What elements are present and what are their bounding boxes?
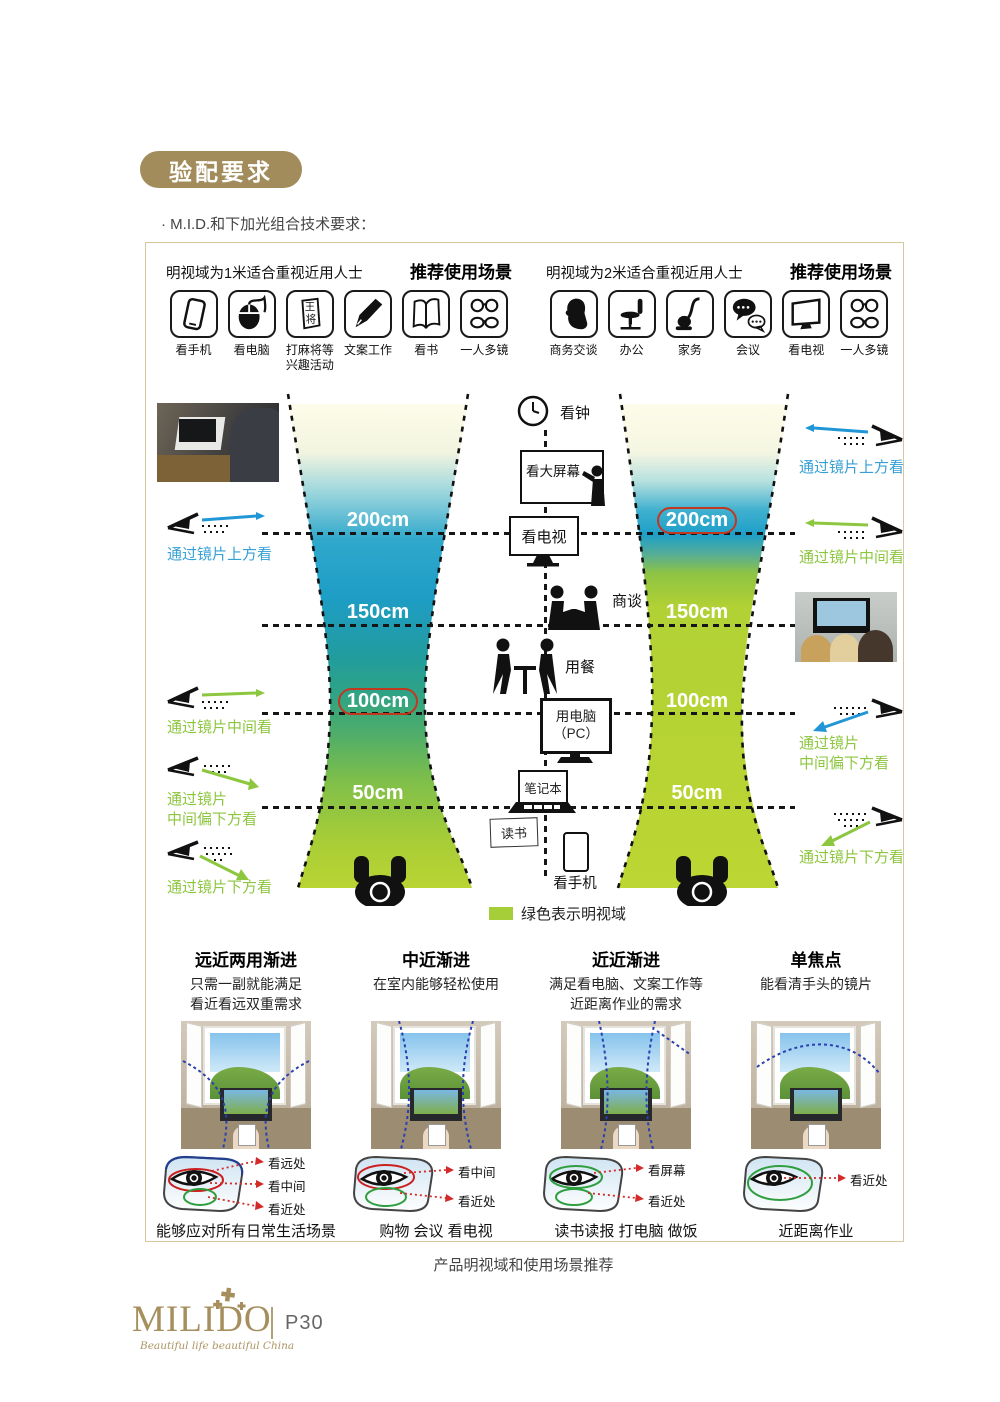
logo-sparkle-icon bbox=[208, 1286, 252, 1312]
section-subtitle: · M.I.D.和下加光组合技术要求： bbox=[161, 213, 375, 234]
photo-family-tv bbox=[795, 592, 897, 662]
dining-silhouette bbox=[490, 636, 560, 694]
lens-usage-caption: 能够应对所有日常生活场景 bbox=[152, 1220, 340, 1241]
zone-label-far: 看远处 bbox=[268, 1153, 306, 1172]
lens-type-desc: 在室内能够轻松使用 bbox=[342, 975, 530, 1015]
activity-phone bbox=[563, 832, 589, 872]
lens-column-far-near: 远近两用渐进 只需一副就能满足 看近看远双重需求 看远处 看中间 看近处 能够应… bbox=[152, 946, 340, 1241]
distance-label-circled: 200cm bbox=[654, 507, 740, 534]
panel-scene-header: 推荐使用场景 bbox=[790, 258, 892, 283]
activity-reading: 读书 bbox=[490, 817, 539, 848]
lens-column-single-vision: 单焦点 能看清手头的镜片 看近处 近距离作业 bbox=[722, 946, 910, 1241]
activity-pc: 用电脑 （PC） bbox=[540, 698, 612, 754]
scene-icon-label: 办公 bbox=[604, 343, 659, 358]
scene-icon-cell: 一人多镜 bbox=[837, 290, 892, 358]
distance-label: 50cm bbox=[335, 782, 421, 805]
vision-zone-overlay bbox=[371, 1021, 501, 1149]
scene-icon-cell: 办公 bbox=[604, 290, 659, 358]
scene-photo bbox=[561, 1021, 691, 1149]
activity-label-clock: 看钟 bbox=[560, 402, 590, 423]
distance-label: 50cm bbox=[654, 782, 740, 805]
scene-icon-row-1m: 看手机 看电脑 王 将 打麻将等 兴趣活动 文案工作 看书 bbox=[166, 290, 512, 373]
lens-usage-caption: 近距离作业 bbox=[722, 1220, 910, 1241]
svg-text:王: 王 bbox=[305, 302, 315, 313]
pc-stand bbox=[556, 751, 594, 765]
annotation-view-bottom: 通过镜片下方看 bbox=[167, 878, 272, 898]
zone-label-near: 看近处 bbox=[268, 1199, 306, 1218]
book-icon bbox=[407, 295, 445, 333]
scene-icon-cell: 看电脑 bbox=[224, 290, 279, 373]
eye-through-lens-icon bbox=[804, 512, 904, 548]
distance-line-150cm bbox=[262, 624, 795, 627]
scene-icon-cell: 商务交谈 bbox=[546, 290, 601, 358]
zone-label-middle: 看中间 bbox=[458, 1162, 496, 1181]
annotation-view-midlow: 通过镜片 中间偏下方看 bbox=[167, 790, 257, 829]
scene-icon-cell: 王 将 打麻将等 兴趣活动 bbox=[282, 290, 337, 373]
phone-icon bbox=[175, 295, 213, 333]
negotiation-silhouette bbox=[542, 584, 606, 630]
scene-icon-cell: 看电视 bbox=[779, 290, 834, 358]
lens-type-title: 远近两用渐进 bbox=[152, 946, 340, 971]
legend-swatch bbox=[489, 907, 513, 920]
eye-through-lens-icon bbox=[804, 696, 904, 738]
scene-icon-label: 文案工作 bbox=[341, 343, 396, 358]
glasses-icon bbox=[845, 295, 883, 333]
legend-text: 绿色表示明视域 bbox=[521, 903, 626, 924]
scene-icon-label: 看电视 bbox=[779, 343, 834, 358]
activity-bigscreen: 看大屏幕 bbox=[520, 450, 604, 504]
panel-header-2m: 明视域为2米适合重视近用人士 推荐使用场景 bbox=[546, 258, 892, 283]
annotation-view-middle: 通过镜片中间看 bbox=[799, 548, 904, 568]
scene-icon-label: 商务交谈 bbox=[546, 343, 601, 358]
svg-text:将: 将 bbox=[306, 314, 316, 326]
vision-funnel-1m bbox=[265, 392, 480, 892]
distance-label: 150cm bbox=[654, 601, 740, 624]
scene-icon-label: 家务 bbox=[662, 343, 717, 358]
lens-type-desc: 满足看电脑、文案工作等 近距离作业的需求 bbox=[532, 975, 720, 1015]
lens-type-title: 中近渐进 bbox=[342, 946, 530, 971]
annotation-view-top: 通过镜片上方看 bbox=[799, 458, 904, 478]
person-topview-icon bbox=[352, 856, 408, 906]
eye-through-lens-icon bbox=[166, 508, 266, 544]
lens-zones-graphic bbox=[532, 1153, 720, 1217]
eye-through-lens-icon bbox=[804, 806, 904, 850]
laptop-base bbox=[506, 802, 578, 816]
lens-diagram: 看远处 看中间 看近处 bbox=[152, 1153, 340, 1217]
lens-diagram: 看屏幕 看近处 bbox=[532, 1153, 720, 1217]
activity-label-negotiation: 商谈 bbox=[612, 590, 642, 611]
distance-label: 150cm bbox=[335, 601, 421, 624]
figure-caption: 产品明视域和使用场景推荐 bbox=[145, 1254, 902, 1275]
panel-title: 明视域为1米适合重视近用人士 bbox=[166, 262, 363, 283]
activity-tv: 看电视 bbox=[509, 516, 579, 556]
zone-label-middle: 看中间 bbox=[268, 1176, 306, 1195]
eye-through-lens-icon bbox=[166, 840, 266, 882]
scene-icon-label: 打麻将等 兴趣活动 bbox=[282, 343, 337, 373]
person-topview-icon bbox=[674, 856, 730, 906]
pen-icon bbox=[349, 295, 387, 333]
scene-icon-cell: 看书 bbox=[399, 290, 454, 373]
chair-icon bbox=[613, 295, 651, 333]
activity-laptop-screen: 笔记本 bbox=[518, 770, 568, 804]
scene-photo bbox=[751, 1021, 881, 1149]
tv-icon bbox=[787, 295, 825, 333]
zone-label-near: 看近处 bbox=[648, 1191, 686, 1210]
lens-type-title: 单焦点 bbox=[722, 946, 910, 971]
presenter-silhouette bbox=[582, 464, 610, 506]
vision-zone-overlay bbox=[561, 1021, 691, 1149]
profile-icon bbox=[555, 295, 593, 333]
scene-icon-label: 一人多镜 bbox=[837, 343, 892, 358]
lens-type-title: 近近渐进 bbox=[532, 946, 720, 971]
lens-usage-caption: 购物 会议 看电视 bbox=[342, 1220, 530, 1241]
legend: 绿色表示明视域 bbox=[489, 903, 626, 924]
lens-diagram: 看近处 bbox=[722, 1153, 910, 1217]
chat-icon bbox=[729, 295, 767, 333]
distance-label: 200cm bbox=[335, 509, 421, 532]
eye-through-lens-icon bbox=[166, 754, 266, 794]
scene-icon-cell: 文案工作 bbox=[341, 290, 396, 373]
page-number: P30 bbox=[285, 1312, 324, 1335]
distance-label-circled: 100cm bbox=[335, 688, 421, 715]
scene-icon-cell: 家务 bbox=[662, 290, 717, 358]
vision-zone-overlay bbox=[751, 1021, 881, 1149]
scene-icon-label: 看手机 bbox=[166, 343, 221, 358]
scene-icon-label: 会议 bbox=[721, 343, 776, 358]
activity-label-phone: 看手机 bbox=[540, 872, 610, 893]
lens-diagram: 看中间 看近处 bbox=[342, 1153, 530, 1217]
tv-stand bbox=[525, 555, 561, 568]
clock-icon bbox=[516, 394, 550, 428]
annotation-view-top: 通过镜片上方看 bbox=[167, 545, 272, 565]
annotation-view-middle: 通过镜片中间看 bbox=[167, 718, 272, 738]
scene-icon-label: 看书 bbox=[399, 343, 454, 358]
scene-icon-cell: 一人多镜 bbox=[457, 290, 512, 373]
zone-label-screen: 看屏幕 bbox=[648, 1160, 686, 1179]
annotation-view-midlow: 通过镜片 中间偏下方看 bbox=[799, 734, 889, 773]
lens-zones-graphic bbox=[152, 1153, 340, 1217]
lens-type-desc: 能看清手头的镜片 bbox=[722, 975, 910, 1015]
zone-label-near: 看近处 bbox=[458, 1191, 496, 1210]
panel-header-1m: 明视域为1米适合重视近用人士 推荐使用场景 bbox=[166, 258, 512, 283]
scene-photo bbox=[371, 1021, 501, 1149]
lens-usage-caption: 读书读报 打电脑 做饭 bbox=[532, 1220, 720, 1241]
mahjong-icon: 王 将 bbox=[291, 295, 329, 333]
lens-column-mid-near: 中近渐进 在室内能够轻松使用 看中间 看近处 购物 会议 看电视 bbox=[342, 946, 530, 1241]
annotation-view-bottom: 通过镜片下方看 bbox=[799, 848, 904, 868]
scene-icon-label: 一人多镜 bbox=[457, 343, 512, 358]
panel-scene-header: 推荐使用场景 bbox=[410, 258, 512, 283]
lens-column-near-near: 近近渐进 满足看电脑、文案工作等 近距离作业的需求 看屏幕 看近处 读书读报 打… bbox=[532, 946, 720, 1241]
vision-zone-overlay bbox=[181, 1021, 311, 1149]
brand-tagline: Beautiful life beautiful China bbox=[140, 1340, 294, 1352]
activity-label-dining: 用餐 bbox=[565, 656, 595, 677]
panel-title: 明视域为2米适合重视近用人士 bbox=[546, 262, 743, 283]
vision-funnel-2m bbox=[612, 392, 792, 892]
photo-laptop-user bbox=[157, 403, 279, 482]
distance-label: 100cm bbox=[654, 690, 740, 713]
lens-type-desc: 只需一副就能满足 看近看远双重需求 bbox=[152, 975, 340, 1015]
scene-icon-label: 看电脑 bbox=[224, 343, 279, 358]
scene-icon-cell: 看手机 bbox=[166, 290, 221, 373]
lens-zones-graphic bbox=[342, 1153, 530, 1217]
eye-through-lens-icon bbox=[804, 420, 904, 458]
vacuum-icon bbox=[671, 295, 709, 333]
scene-photo bbox=[181, 1021, 311, 1149]
glasses-icon bbox=[465, 295, 503, 333]
eye-through-lens-icon bbox=[166, 682, 266, 716]
zone-label-near: 看近处 bbox=[850, 1170, 888, 1189]
footer-divider bbox=[271, 1307, 273, 1339]
section-badge: 验配要求 bbox=[140, 151, 302, 188]
scene-icon-cell: 会议 bbox=[721, 290, 776, 358]
mouse-icon bbox=[233, 295, 271, 333]
scene-icon-row-2m: 商务交谈 办公 家务 会议 看电视 bbox=[546, 290, 892, 358]
